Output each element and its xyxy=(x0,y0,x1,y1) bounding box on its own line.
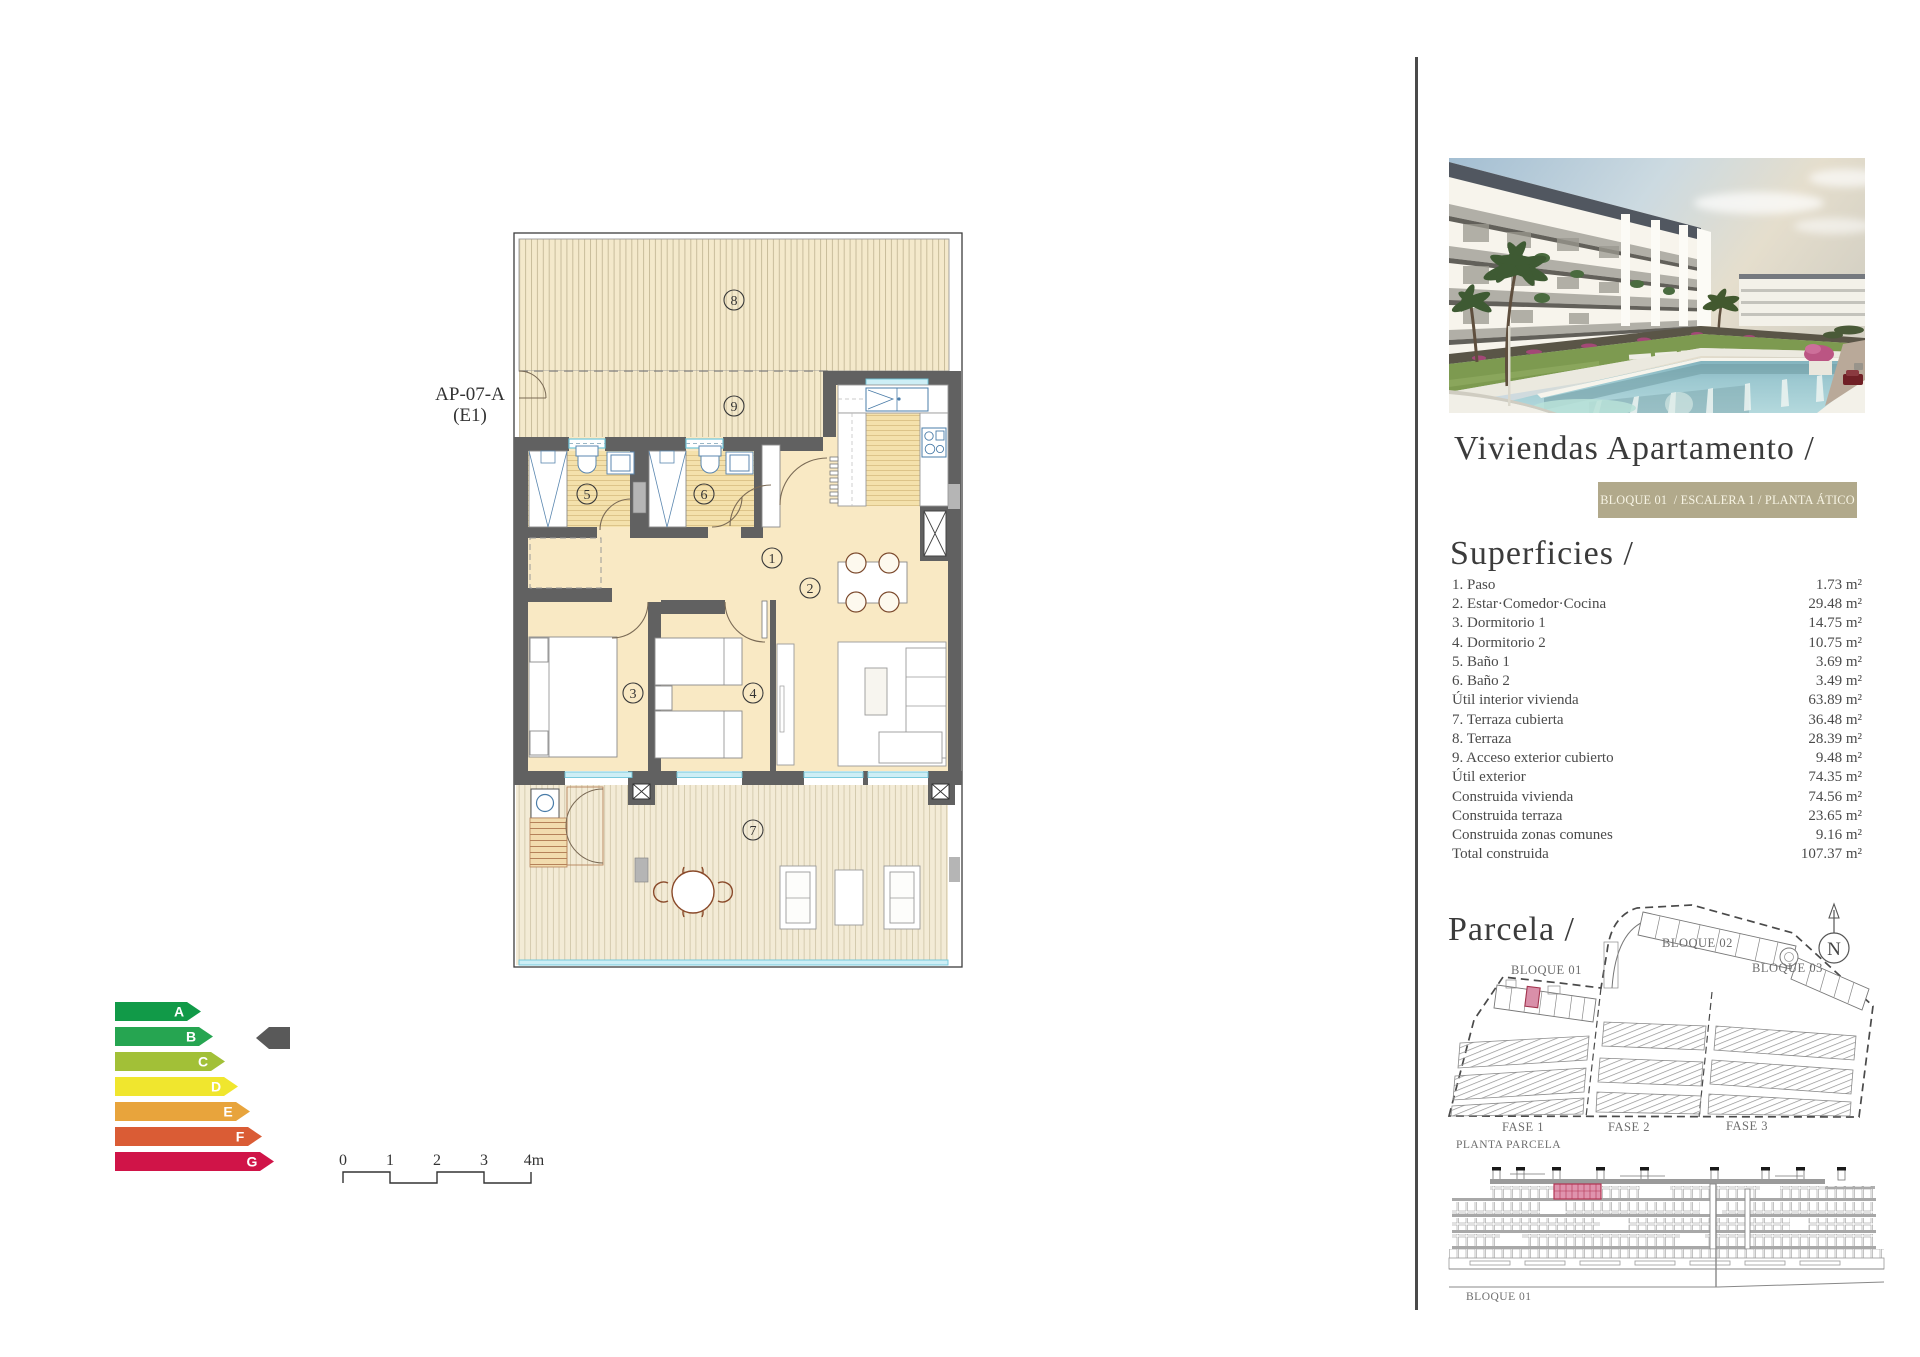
svg-text:BLOQUE 01: BLOQUE 01 xyxy=(1511,963,1582,977)
svg-text:FASE 1: FASE 1 xyxy=(1502,1120,1544,1134)
svg-text:1: 1 xyxy=(386,1152,394,1169)
svg-text:BLOQUE 02: BLOQUE 02 xyxy=(1662,936,1733,950)
svg-text:FASE 3: FASE 3 xyxy=(1726,1119,1768,1133)
svg-text:F: F xyxy=(236,1129,245,1145)
svg-text:9: 9 xyxy=(731,400,738,415)
svg-text:4m: 4m xyxy=(524,1152,545,1169)
svg-text:2: 2 xyxy=(433,1152,441,1169)
svg-text:2: 2 xyxy=(807,582,814,597)
svg-text:5: 5 xyxy=(584,488,591,503)
svg-text:B: B xyxy=(186,1029,196,1045)
svg-text:3: 3 xyxy=(630,687,637,702)
svg-text:G: G xyxy=(247,1154,258,1170)
svg-text:BLOQUE 03: BLOQUE 03 xyxy=(1752,961,1823,975)
svg-text:6: 6 xyxy=(701,488,708,503)
svg-text:8: 8 xyxy=(731,294,738,309)
svg-text:FASE 2: FASE 2 xyxy=(1608,1120,1650,1134)
svg-text:3: 3 xyxy=(480,1152,488,1169)
svg-text:C: C xyxy=(198,1054,208,1070)
svg-text:N: N xyxy=(1827,939,1841,960)
svg-text:A: A xyxy=(174,1004,184,1020)
svg-text:1: 1 xyxy=(769,552,776,567)
svg-text:AP-07-A: AP-07-A xyxy=(435,384,505,405)
svg-text:E: E xyxy=(223,1104,232,1120)
svg-text:0: 0 xyxy=(339,1152,347,1169)
svg-text:(E1): (E1) xyxy=(453,405,487,426)
svg-text:D: D xyxy=(211,1079,221,1095)
svg-text:7: 7 xyxy=(750,824,757,839)
svg-text:4: 4 xyxy=(750,687,757,702)
